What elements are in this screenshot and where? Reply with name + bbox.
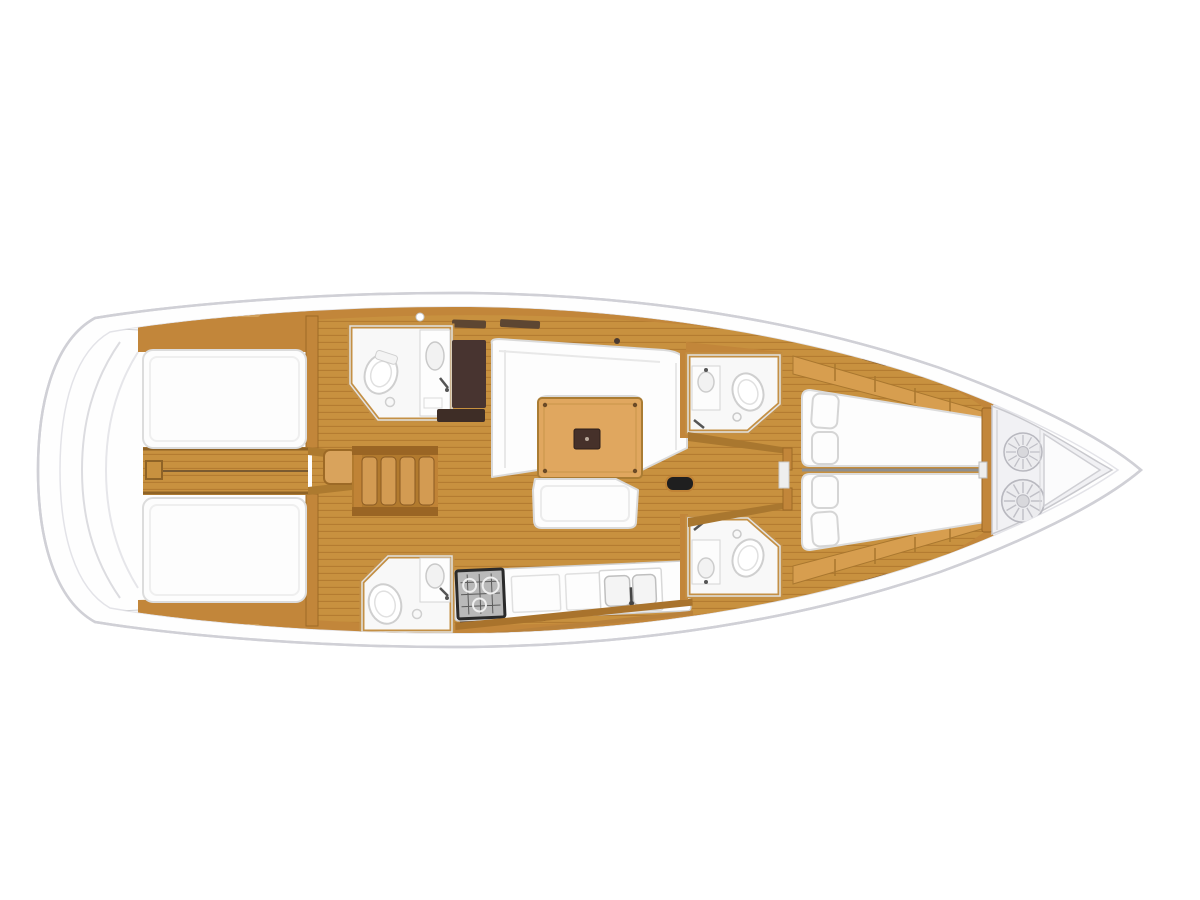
washbasin — [426, 564, 444, 588]
washbasin — [698, 558, 714, 578]
stair-tread — [419, 457, 434, 505]
bulkhead-latch — [979, 462, 987, 478]
corridor-fitting — [146, 461, 162, 479]
stove-icon — [456, 569, 505, 619]
pillow — [811, 511, 839, 547]
faucet-icon — [631, 587, 632, 601]
aft-head-starboard — [362, 556, 452, 632]
stair-tread — [362, 457, 377, 505]
deck-hatch-slot — [452, 319, 486, 328]
engine-box-seat — [324, 450, 356, 484]
yacht-floorplan — [0, 0, 1200, 900]
nav-panel — [452, 340, 486, 408]
rope-coil-icon — [1004, 433, 1042, 471]
stair-tread — [381, 457, 396, 505]
aft-cabin-starboard-berth — [143, 498, 306, 602]
aft-head-port — [350, 326, 452, 420]
pillow — [812, 476, 838, 508]
deck-fitting — [416, 313, 424, 321]
pillow — [811, 393, 839, 429]
bulkhead — [306, 494, 318, 626]
stair-tread — [400, 457, 415, 505]
nav-panel-mat — [437, 409, 485, 422]
door-post — [783, 488, 792, 510]
door-threshold — [779, 462, 789, 488]
washbasin — [698, 372, 714, 392]
aft-cabin-port-berth — [143, 350, 306, 448]
saloon-table — [538, 398, 642, 478]
bulkhead — [306, 316, 318, 448]
washbasin — [426, 342, 444, 370]
pouf — [666, 476, 694, 491]
hatch-dot — [614, 338, 620, 344]
pillow — [812, 432, 838, 464]
